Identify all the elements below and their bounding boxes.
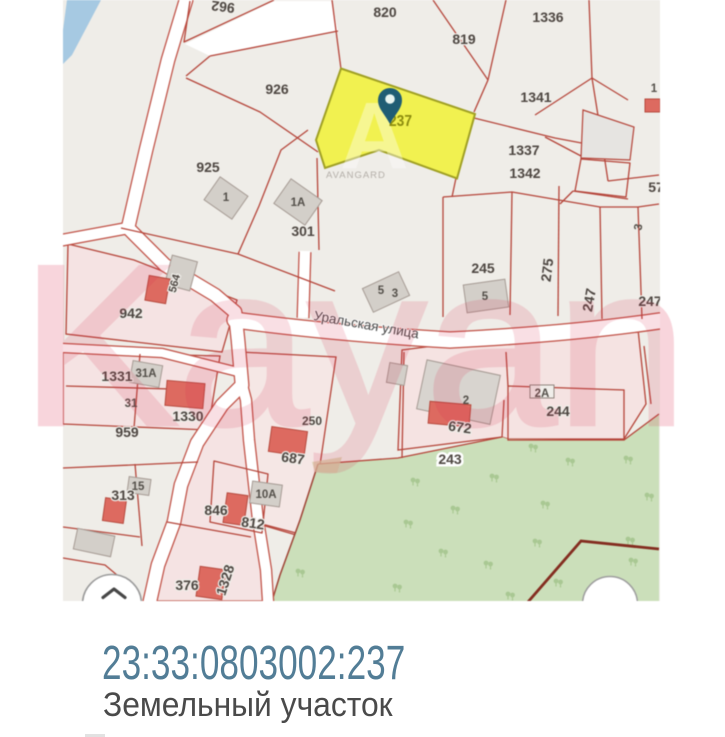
svg-text:1337: 1337 [508,142,539,158]
svg-text:1336: 1336 [532,9,563,25]
svg-text:819: 819 [452,31,476,47]
svg-text:Kayan: Kayan [21,218,687,473]
svg-text:376: 376 [175,577,199,593]
svg-text:1А: 1А [291,197,306,209]
svg-text:57: 57 [648,179,664,195]
svg-text:10А: 10А [255,489,276,501]
svg-text:1342: 1342 [509,165,540,181]
svg-text:1341: 1341 [520,89,551,105]
svg-text:812: 812 [240,513,266,532]
svg-text:846: 846 [204,502,228,518]
svg-text:AVANGARD: AVANGARD [326,170,386,181]
svg-text:926: 926 [265,81,289,97]
svg-text:962: 962 [210,0,235,16]
svg-text:820: 820 [373,4,397,20]
svg-text:925: 925 [196,159,220,175]
svg-text:1: 1 [223,192,230,204]
svg-text:15: 15 [132,481,145,493]
svg-text:1: 1 [651,83,658,95]
